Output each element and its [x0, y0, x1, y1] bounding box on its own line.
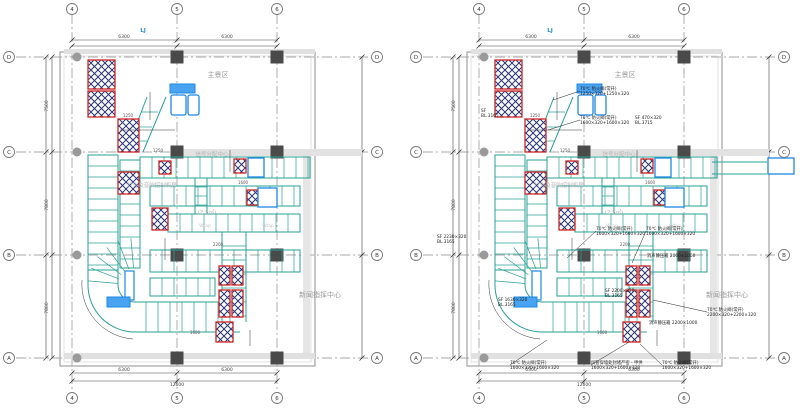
crosshatch-unit	[566, 161, 578, 174]
crosshatch-unit	[626, 266, 637, 285]
crosshatch-unit	[495, 60, 522, 89]
grid-bubble-label: 6	[682, 396, 686, 402]
grid-bubble-label: 5	[175, 396, 179, 402]
dim-text: 6300	[221, 34, 233, 40]
blue-unit	[768, 158, 794, 174]
blue-unit	[188, 95, 199, 115]
grid-bubble-label: A	[7, 356, 11, 362]
grid-bubble-label: B	[375, 253, 379, 259]
column	[678, 51, 691, 64]
crosshatch-unit	[639, 290, 650, 317]
column	[171, 51, 184, 64]
annotation-text: 70℃ 防火阀(常开)1600×320+1600×320	[646, 225, 695, 237]
grid-bubble-label: D	[375, 55, 379, 61]
blue-unit	[171, 95, 186, 115]
crosshatch-unit	[152, 208, 168, 230]
crosshatch-unit	[495, 91, 522, 117]
crosshatch-unit	[559, 208, 575, 230]
plan-right: 456456DCBADCBA63006300630063001260075007…	[411, 4, 795, 404]
dim-text: 12600	[577, 382, 591, 388]
annotation-text: 70℃ 防火阀(常开)1600×320+1600×320	[596, 225, 645, 237]
crosshatch-unit	[88, 60, 115, 89]
annotation-text: 风管穿墙处封堵严密 - 甲供1600×320+1600×320	[591, 359, 643, 371]
plan-drawing: 456456DCBADCBA63006300630063001260075007…	[0, 0, 800, 411]
crosshatch-unit	[525, 119, 546, 152]
round-column	[73, 53, 82, 62]
dim-text: 2200	[213, 242, 224, 247]
duct	[88, 155, 118, 270]
blue-unit	[258, 188, 277, 207]
corridor-strip	[303, 156, 310, 353]
annotation-text: 70℃ 防火阀(常开)1600×320+1600×320	[662, 359, 711, 371]
annotation-text: SF 470×320BL.3715	[635, 115, 662, 126]
area-label: LJ	[547, 28, 553, 34]
dim-text: 7800	[451, 199, 457, 211]
column	[578, 51, 591, 64]
crosshatch-unit	[639, 266, 650, 285]
bend-radial	[88, 281, 118, 284]
dim-text: 1250	[153, 148, 164, 153]
grid-bubble-label: A	[375, 356, 379, 362]
annotation-text: 70℃ 防火阀(常开)2200×320+2200×320	[707, 306, 756, 318]
dim-text: 1250	[560, 148, 571, 153]
crosshatch-unit	[232, 290, 243, 317]
area-label: 信号分配中心	[195, 150, 229, 158]
bend-radial	[131, 238, 134, 268]
crosshatch-unit	[219, 266, 230, 285]
grid-bubble-label: A	[414, 356, 418, 362]
crosshatch-unit	[159, 161, 171, 174]
column	[171, 352, 184, 365]
dim-text: 7800	[451, 302, 457, 314]
grid-bubble-label: 5	[175, 7, 179, 13]
dim-text: 7500	[451, 100, 457, 112]
crosshatch-unit	[118, 119, 139, 152]
dim-text: 6300	[525, 34, 537, 40]
duct	[575, 214, 707, 232]
blue-unit	[665, 188, 684, 207]
area-label: 新闻指挥中心	[706, 290, 748, 299]
crosshatch-unit	[216, 322, 233, 342]
crosshatch-unit	[654, 190, 665, 205]
round-column	[480, 53, 489, 62]
dim-text: 1600	[597, 330, 608, 335]
dim-text: 7800	[44, 199, 50, 211]
grid-bubble-label: C	[782, 150, 786, 156]
grid-bubble-label: 4	[70, 396, 74, 402]
area-label: (2.5㎡)	[605, 208, 624, 216]
grid-bubble-label: D	[414, 55, 418, 61]
annotation-text: SF 2230×320BL.3165	[437, 234, 467, 245]
blue-unit	[595, 95, 606, 115]
dim-text: 6300	[118, 34, 130, 40]
grid-bubble-label: C	[7, 150, 11, 156]
bend-radial	[538, 238, 541, 268]
dim-text: 1600	[190, 330, 201, 335]
blue-unit	[107, 297, 130, 307]
annotation-text: 消声静压箱 2200×1000	[649, 319, 698, 326]
duct	[495, 155, 525, 270]
area-label: LJ	[140, 28, 146, 34]
grid-bubble-label: D	[7, 55, 11, 61]
dim-text: 7800	[44, 302, 50, 314]
round-column	[73, 148, 82, 157]
round-column	[73, 354, 82, 363]
corridor-strip	[710, 156, 717, 353]
column	[578, 352, 591, 365]
grid-bubble-label: 5	[582, 7, 586, 13]
leader-line	[653, 300, 707, 312]
area-label: Wtap	[199, 223, 211, 229]
round-column	[480, 354, 489, 363]
crosshatch-unit	[88, 91, 115, 117]
round-column	[480, 251, 489, 260]
crosshatch-unit	[626, 290, 637, 317]
dim-text: 1250	[123, 113, 134, 118]
hvac-plan-sheet: 456456DCBADCBA63006300630063001260075007…	[0, 0, 800, 411]
area-label: 新闻指挥中心	[299, 290, 341, 299]
area-label: Wtap	[262, 223, 274, 229]
crosshatch-unit	[641, 159, 653, 173]
dim-text: 7500	[44, 100, 50, 112]
blue-duct-tag	[170, 84, 195, 93]
grid-bubble-label: D	[782, 55, 786, 61]
dim-text: 12600	[170, 382, 184, 388]
grid-bubble-label: C	[414, 150, 418, 156]
crosshatch-unit	[232, 266, 243, 285]
dim-text: 6300	[628, 34, 640, 40]
grid-bubble-label: 4	[70, 7, 74, 13]
bend-radial	[495, 281, 525, 284]
annotation-text: 70℃ 防火阀(常开)1250×320+1250×320	[580, 85, 629, 97]
dim-text: 1250	[530, 113, 541, 118]
annotation-text: 70℃ 防火阀(常开)1600×320+1600×320	[510, 359, 559, 371]
crosshatch-unit	[234, 159, 246, 173]
dim-text: 1600	[238, 180, 249, 185]
grid-bubble-label: B	[782, 253, 786, 259]
area-label: (2.5㎡)	[198, 208, 217, 216]
column	[271, 352, 284, 365]
blue-unit	[125, 271, 134, 300]
round-column	[73, 251, 82, 260]
duct	[150, 278, 215, 296]
annotation-text: 70℃ 防火阀(常开)1600×320+1600×320	[580, 114, 629, 126]
blue-unit	[578, 95, 593, 115]
grid-bubble-label: 5	[582, 396, 586, 402]
grid-bubble-label: B	[414, 253, 418, 259]
area-label: 主景区	[208, 70, 229, 79]
blue-unit	[532, 271, 541, 300]
annotation-text: 消声静压箱 2000×1000	[647, 252, 696, 259]
crosshatch-unit	[623, 322, 640, 342]
duct-diagonal	[143, 97, 166, 152]
leader-line	[548, 120, 580, 130]
area-label: 主景区	[615, 70, 636, 79]
round-column	[480, 148, 489, 157]
grid-bubble-label: C	[375, 150, 379, 156]
crosshatch-unit	[247, 190, 258, 205]
grid-bubble-label: A	[782, 356, 786, 362]
blue-unit	[248, 158, 264, 177]
area-label: 灯光及音响控制机房	[534, 181, 584, 189]
dim-text: 2200	[620, 242, 631, 247]
dim-text: 6300	[221, 367, 233, 373]
grid-bubble-label: 4	[477, 396, 481, 402]
grid-bubble-label: 6	[682, 7, 686, 13]
column	[271, 51, 284, 64]
blue-unit	[655, 158, 671, 177]
area-label: 信号分配中心	[602, 150, 636, 158]
grid-bubble-label: 6	[275, 7, 279, 13]
area-label: 灯光及音响控制机房	[127, 181, 177, 189]
grid-bubble-label: 4	[477, 7, 481, 13]
dim-text: 6300	[118, 367, 130, 373]
plan-left: 456456DCBADCBA63006300630063001260075007…	[4, 4, 383, 404]
dim-text: 1600	[645, 180, 656, 185]
crosshatch-unit	[219, 290, 230, 317]
grid-bubble-label: B	[7, 253, 11, 259]
duct	[168, 214, 300, 232]
duct-diagonal	[550, 97, 573, 152]
grid-bubble-label: 6	[275, 396, 279, 402]
